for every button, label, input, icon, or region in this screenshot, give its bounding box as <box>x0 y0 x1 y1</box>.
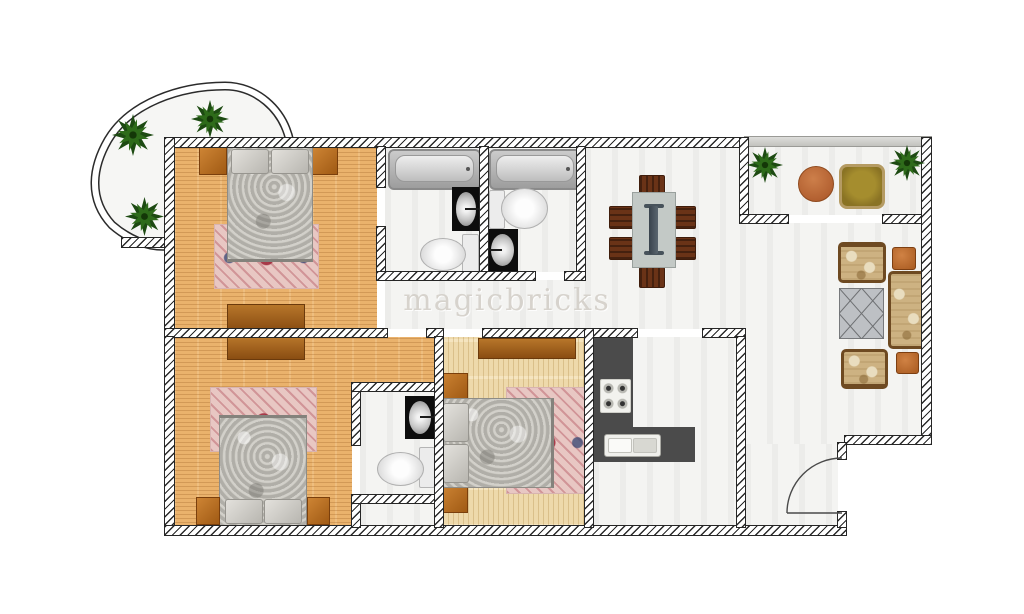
armchair-icon <box>841 349 888 389</box>
bathtub-icon <box>388 149 481 190</box>
dining-chair-icon <box>675 237 696 260</box>
nightstand-icon <box>199 147 227 175</box>
nightstand-icon <box>312 147 338 175</box>
floor-plan: magicbricks <box>0 0 1024 614</box>
wall-bathrooms-bottom <box>377 272 535 280</box>
dresser-icon <box>227 304 305 331</box>
pillow-icon <box>231 149 269 174</box>
plant-icon <box>889 145 925 181</box>
faucet-icon <box>465 208 479 210</box>
wall-right <box>922 138 931 444</box>
pillow-icon <box>443 444 469 483</box>
wall-between-bathrooms <box>480 147 488 272</box>
wall-hall-bedroom3 <box>427 329 443 337</box>
bedroom-2-entry-strip-floor <box>352 337 435 383</box>
wall-kitchen-left <box>585 329 593 527</box>
wall-kitchen-top-right <box>703 329 745 337</box>
dining-chair-icon <box>675 206 696 229</box>
plant-icon <box>191 100 229 138</box>
dining-chair-icon <box>609 237 634 260</box>
armchair-icon <box>838 242 886 283</box>
gas-hob-icon <box>600 379 631 413</box>
side-table-icon <box>896 352 919 374</box>
wall-left-bedroom-2 <box>165 337 174 527</box>
dresser-icon <box>478 338 576 359</box>
kitchen-sink-icon <box>604 434 661 457</box>
terrace-round-table <box>798 166 834 202</box>
dining-chair-icon <box>639 267 665 288</box>
wall-bathroom3-bottom <box>352 495 443 503</box>
plant-icon <box>112 114 154 156</box>
dining-chair-icon <box>609 206 634 229</box>
wall-bedroom3-kitchen-top <box>483 329 637 337</box>
coffee-table <box>839 288 884 339</box>
toilet-icon <box>420 238 466 271</box>
plant-icon <box>747 147 783 183</box>
wall-bedroom-divider <box>165 329 387 337</box>
wall-bathrooms-bottom-right <box>565 272 585 280</box>
wall-bedroom1-bath1-upper <box>377 147 385 187</box>
dining-table <box>632 192 676 268</box>
nightstand-icon <box>196 497 220 525</box>
terrace-armchair <box>839 164 885 209</box>
toilet-icon <box>377 452 424 486</box>
nightstand-icon <box>307 497 330 525</box>
pillow-icon <box>264 499 302 524</box>
wall-bathroom3-left-upper <box>352 383 360 445</box>
wall-step-bottom-right <box>845 436 931 444</box>
wall-terrace-bottom-left <box>740 215 788 223</box>
pillow-icon <box>225 499 263 524</box>
closet-floor <box>360 503 435 526</box>
pillow-icon <box>271 149 309 174</box>
wall-top <box>165 138 745 147</box>
faucet-icon <box>487 249 502 251</box>
wall-left-bedroom-1 <box>165 138 174 337</box>
entry-door-swing-icon <box>728 448 853 528</box>
dresser-icon <box>227 336 305 360</box>
bathtub-icon <box>489 149 581 190</box>
wall-bathroom2-right <box>577 147 585 280</box>
watermark: magicbricks <box>392 283 622 318</box>
faucet-icon <box>420 416 435 418</box>
wall-bathroom3-top <box>352 383 443 391</box>
pillow-icon <box>443 403 469 442</box>
balcony-wall-stub <box>122 238 170 247</box>
wall-bedroom3-left <box>435 337 443 527</box>
plant-icon <box>125 197 164 236</box>
side-table-icon <box>892 247 916 270</box>
toilet-icon <box>501 188 548 229</box>
